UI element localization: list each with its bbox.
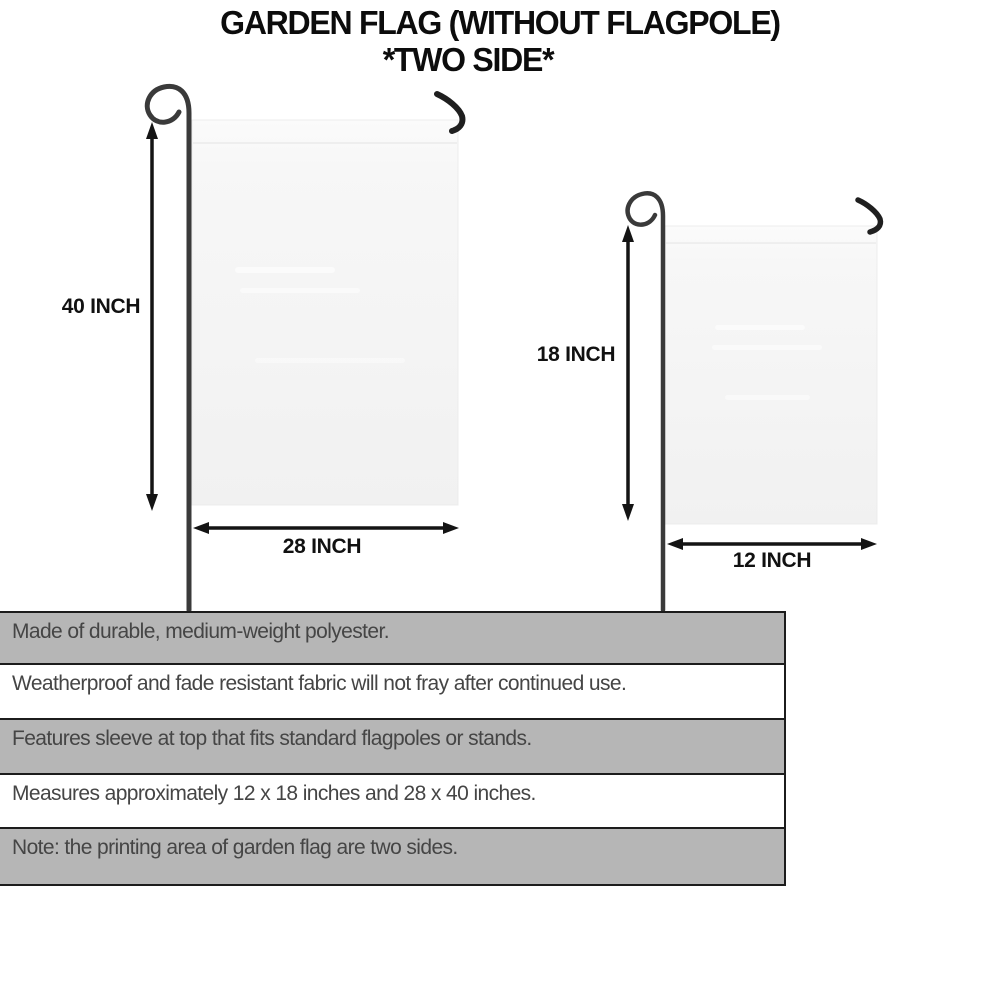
- large-flag-assembly: [146, 86, 462, 610]
- feature-text: Made of durable, medium-weight polyester…: [12, 620, 389, 643]
- feature-row-note: Note: the printing area of garden flag a…: [0, 827, 786, 886]
- large-flag-fabric: [192, 120, 458, 505]
- feature-list: Made of durable, medium-weight polyester…: [0, 611, 786, 886]
- small-flag-height-label: 18 INCH: [506, 343, 646, 367]
- large-flag-width-label: 28 INCH: [252, 535, 392, 559]
- fabric-crease: [725, 395, 810, 400]
- feature-row-material: Made of durable, medium-weight polyester…: [0, 611, 786, 665]
- small-flag-width-label: 12 INCH: [702, 549, 842, 573]
- feature-text: Note: the printing area of garden flag a…: [12, 836, 458, 859]
- small-flag-assembly: [622, 193, 880, 610]
- feature-text: Weatherproof and fade resistant fabric w…: [12, 672, 626, 695]
- fabric-crease: [235, 267, 335, 273]
- fabric-crease: [712, 345, 822, 350]
- feature-row-sleeve: Features sleeve at top that fits standar…: [0, 718, 786, 775]
- garden-flag-infographic: GARDEN FLAG (WITHOUT FLAGPOLE) *TWO SIDE…: [0, 0, 1000, 1000]
- fabric-crease: [255, 358, 405, 363]
- feature-text: Measures approximately 12 x 18 inches an…: [12, 782, 536, 805]
- fabric-crease: [240, 288, 360, 293]
- fabric-crease: [715, 325, 805, 330]
- small-flag-fabric: [665, 226, 877, 524]
- small-flag-height-arrow: [622, 225, 634, 521]
- feature-text: Features sleeve at top that fits standar…: [12, 727, 532, 750]
- feature-row-weatherproof: Weatherproof and fade resistant fabric w…: [0, 663, 786, 721]
- large-flag-height-label: 40 INCH: [41, 295, 161, 319]
- feature-row-measures: Measures approximately 12 x 18 inches an…: [0, 773, 786, 830]
- small-flagpole: [628, 193, 663, 610]
- large-flag-width-arrow: [193, 522, 459, 534]
